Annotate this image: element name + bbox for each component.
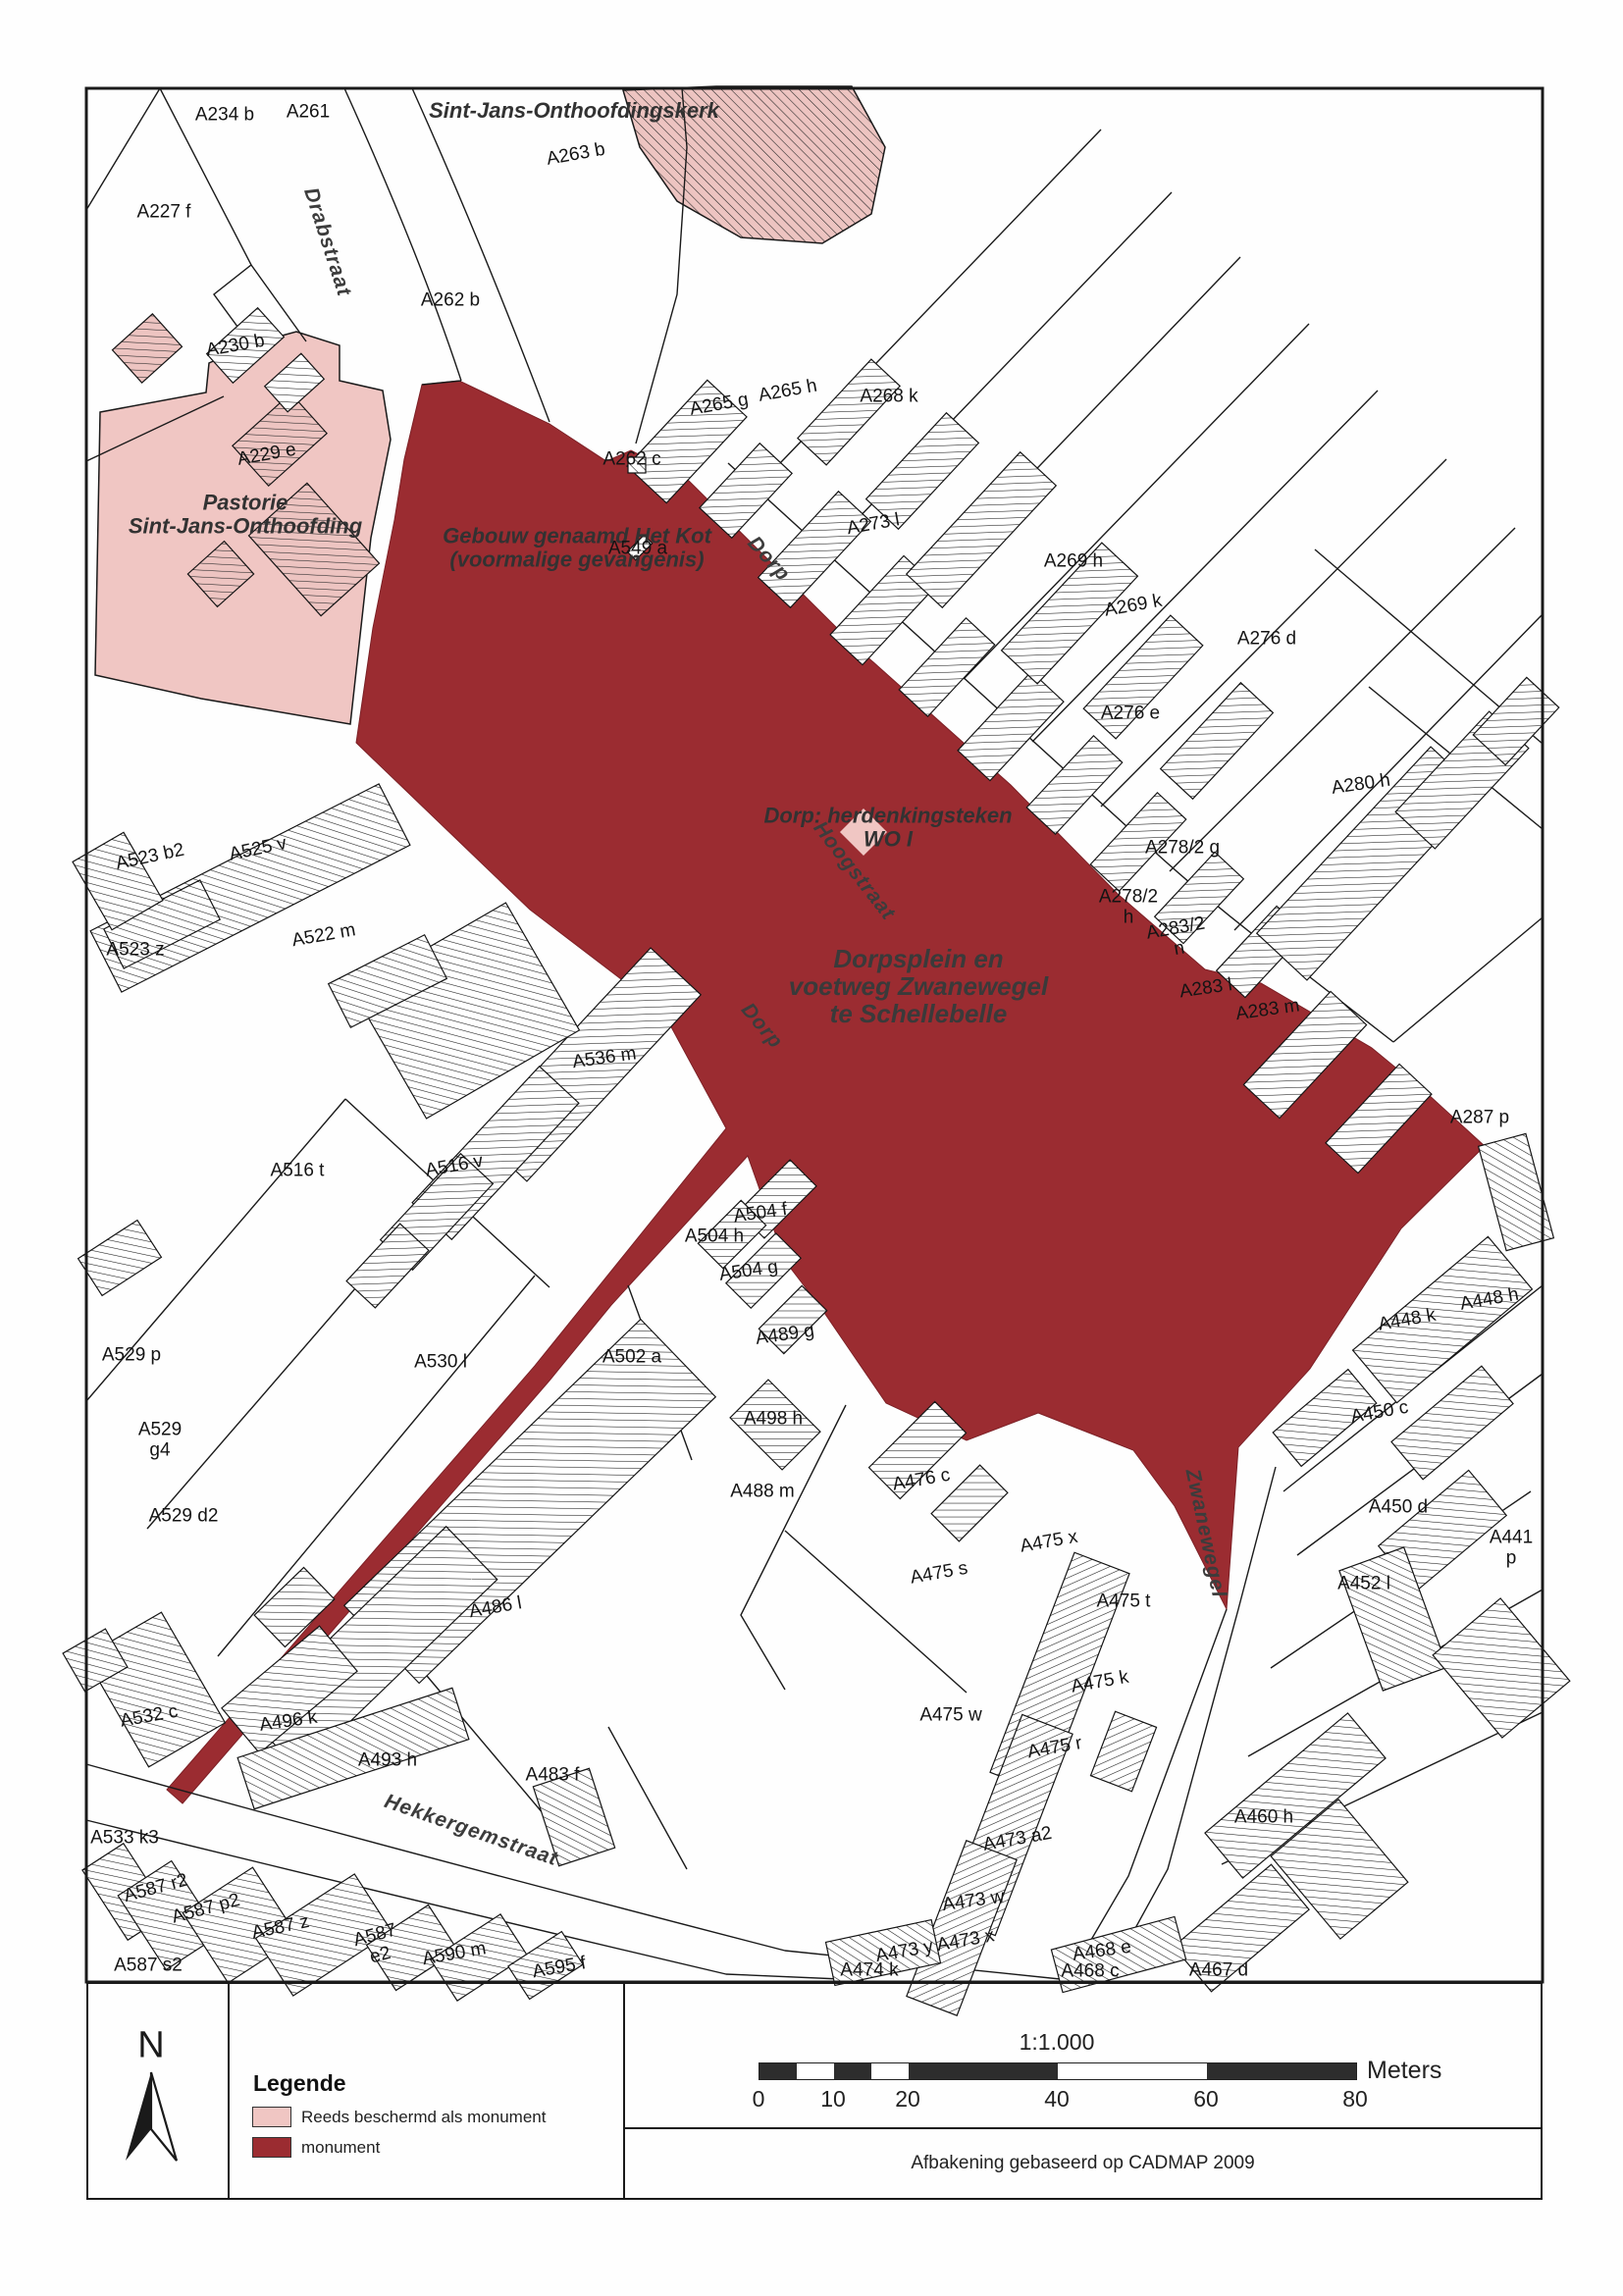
legend-swatch-protected: [252, 2107, 291, 2127]
building: [798, 359, 900, 465]
legend-title: Legende: [253, 2070, 346, 2097]
scale-tick: 0: [753, 2086, 765, 2113]
map-footer-strip: Legende Reeds beschermd als monument mon…: [86, 1982, 1543, 2200]
scale-unit: Meters: [1367, 2057, 1441, 2085]
building: [1026, 736, 1122, 834]
building: [931, 1465, 1008, 1541]
scale-tick: 20: [895, 2086, 920, 2113]
building: [866, 413, 979, 529]
legend-label: monument: [301, 2138, 380, 2158]
building: [1090, 1711, 1156, 1791]
building: [1002, 543, 1138, 684]
building: [628, 457, 646, 473]
building: [256, 1874, 393, 1996]
building: [533, 1768, 614, 1865]
building: [730, 1380, 820, 1470]
scale-tick: 80: [1342, 2086, 1368, 2113]
legend-swatch-monument: [252, 2137, 291, 2158]
building: [1090, 793, 1185, 891]
building: [1433, 1598, 1570, 1738]
scalebar: [759, 2062, 1357, 2080]
protected-area-church: [623, 86, 885, 243]
building: [79, 1221, 162, 1296]
scale-tick: 10: [820, 2086, 846, 2113]
building: [1174, 1864, 1309, 1992]
scalebar-area: 1:1.000 Meters 0 10 20 40 60 80: [623, 1984, 1543, 2127]
scale-ratio: 1:1.000: [1020, 2029, 1095, 2056]
divider: [228, 1984, 230, 2198]
scale-tick: 40: [1044, 2086, 1070, 2113]
legend-item-protected: Reeds beschermd als monument: [252, 2107, 546, 2127]
legend-label: Reeds beschermd als monument: [301, 2108, 546, 2127]
scale-tick: 60: [1193, 2086, 1219, 2113]
building: [759, 492, 871, 607]
building: [113, 314, 183, 383]
source-note: Afbakening gebaseerd op CADMAP 2009: [623, 2127, 1543, 2200]
building: [1083, 615, 1203, 739]
building: [1155, 852, 1244, 943]
legend-item-monument: monument: [252, 2137, 380, 2158]
cadastral-map-canvas: [0, 0, 1623, 2296]
map-page: A234 bA261Sint-Jans-OnthoofdingskerkA263…: [0, 0, 1623, 2296]
building: [1161, 683, 1274, 799]
